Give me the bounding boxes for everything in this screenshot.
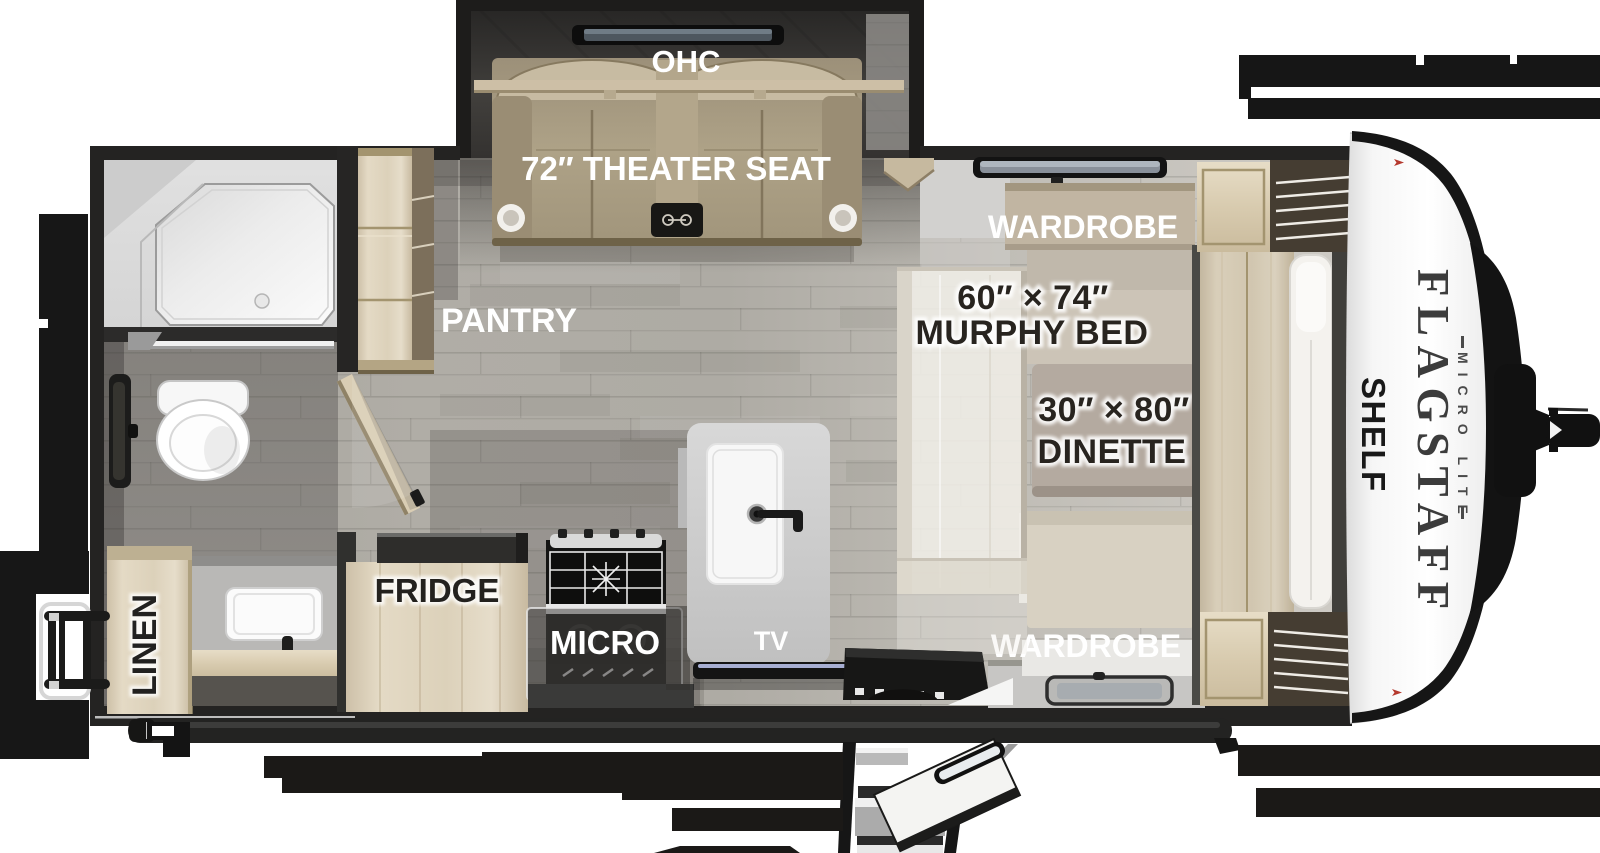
svg-text:MICRO LITE: MICRO LITE: [1455, 352, 1471, 523]
svg-text:MICRO: MICRO: [550, 624, 660, 661]
svg-text:SHELF: SHELF: [1355, 377, 1392, 493]
svg-text:WARDROBE: WARDROBE: [988, 209, 1178, 245]
svg-text:DINETTE: DINETTE: [1038, 433, 1187, 471]
svg-text:72″ THEATER SEAT: 72″ THEATER SEAT: [521, 150, 831, 187]
svg-text:PANTRY: PANTRY: [441, 302, 577, 340]
svg-text:FRIDGE: FRIDGE: [375, 572, 500, 609]
svg-text:60″ × 74″: 60″ × 74″: [957, 279, 1108, 317]
svg-text:TV: TV: [754, 626, 789, 656]
svg-text:OHC: OHC: [652, 44, 721, 79]
svg-text:FLAGSTAFF: FLAGSTAFF: [1408, 269, 1458, 619]
svg-text:LINEN: LINEN: [126, 594, 164, 696]
svg-text:30″ × 80″: 30″ × 80″: [1038, 391, 1189, 429]
svg-text:MURPHY BED: MURPHY BED: [916, 314, 1149, 352]
